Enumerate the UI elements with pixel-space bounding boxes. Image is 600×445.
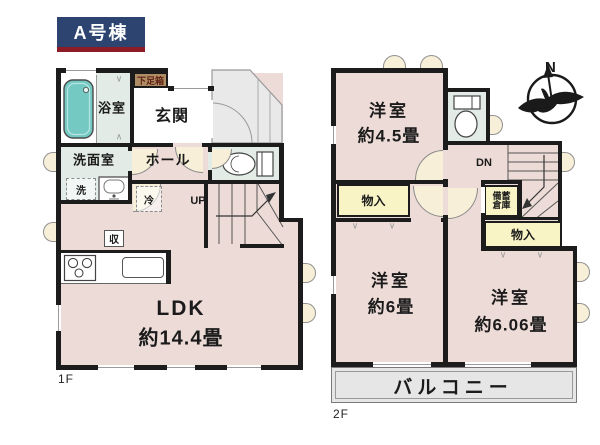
washer-label: 洗 — [76, 182, 86, 197]
shoebox: 下足箱 — [133, 72, 168, 88]
fridge-label: 冷 — [144, 192, 154, 207]
f1-floor-step — [283, 222, 298, 365]
fold-mark: ∨ — [537, 250, 544, 261]
building-title: A号棟 — [74, 19, 129, 45]
f1-stairs — [206, 182, 285, 248]
casement-window — [43, 152, 56, 172]
wall — [481, 180, 522, 184]
door-opening — [443, 150, 448, 179]
closet-right-label: 物入 — [511, 226, 535, 243]
title-underline — [57, 47, 145, 52]
floor1-label: 1F — [58, 372, 74, 386]
kitchen-sink — [122, 257, 164, 278]
wall — [204, 184, 208, 248]
window — [174, 86, 208, 91]
room-label-606: 洋室 — [491, 284, 531, 309]
stairs-up-label: UP — [190, 195, 205, 207]
compass-north-label: N — [545, 59, 556, 76]
entrance-porch — [210, 66, 286, 146]
closet-right: 物入 — [484, 221, 562, 248]
stock-storage: 備蓄 倉庫 — [484, 185, 519, 217]
stove — [63, 254, 97, 282]
floorplan-page: { "title": "A号棟", "colors": { "wall": "#… — [0, 0, 600, 445]
washbasin — [98, 176, 130, 202]
window — [98, 365, 134, 370]
window — [331, 126, 336, 144]
casement-window — [577, 303, 590, 323]
title-block: A号棟 — [57, 17, 145, 52]
counter-top-edge — [60, 250, 168, 253]
washer-space: 洗 — [66, 178, 96, 200]
window — [167, 365, 195, 370]
counter-end-stub — [166, 250, 171, 284]
window — [331, 276, 336, 294]
floor2-label: 2F — [333, 407, 349, 421]
wall — [60, 200, 132, 204]
casement-window — [490, 115, 503, 135]
casement-window — [577, 262, 590, 282]
window — [56, 305, 61, 331]
wall — [331, 68, 448, 73]
room-label-washroom: 洗面室 — [73, 150, 115, 169]
door-opening — [411, 218, 441, 222]
fold-mark: ∨ — [116, 74, 123, 85]
wall — [60, 143, 283, 147]
fold-mark: ∨ — [352, 221, 359, 232]
storage-label: 収 — [109, 231, 119, 246]
room-label-606-size: 約6.06畳 — [474, 311, 547, 336]
room-label-45-size: 約4.5畳 — [358, 122, 421, 147]
wall — [448, 141, 562, 145]
closet-left: 物入 — [337, 184, 410, 217]
room-label-45: 洋室 — [369, 97, 409, 122]
door-opening — [481, 187, 485, 213]
casement-window — [303, 263, 316, 283]
title-banner: A号棟 — [57, 17, 145, 47]
room-label-hall: ホール — [146, 150, 191, 170]
window — [227, 365, 261, 370]
fold-mark: ∨ — [500, 250, 507, 261]
casement-window — [420, 55, 443, 68]
fold-mark: ∧ — [116, 132, 123, 143]
wall — [448, 88, 490, 92]
bathtub — [62, 78, 96, 140]
wall — [298, 218, 303, 370]
stairs-dn-label: DN — [476, 157, 492, 169]
door-opening — [210, 100, 213, 138]
casement-window — [562, 152, 575, 172]
casement-window — [43, 222, 56, 242]
wall — [240, 244, 284, 248]
room-label-ldk-size: 約14.4畳 — [139, 322, 224, 351]
room-label-bathroom: 浴室 — [98, 98, 126, 117]
casement-window — [303, 303, 316, 323]
wall — [481, 217, 562, 220]
room-label-ldk: LDK — [156, 297, 205, 321]
window — [66, 68, 96, 73]
closet-left-label: 物入 — [361, 192, 385, 209]
room-label-6: 洋室 — [371, 267, 411, 292]
stock-storage-line2: 倉庫 — [492, 201, 510, 210]
balcony-label: バルコニー — [393, 373, 513, 400]
casement-window — [383, 55, 406, 68]
storage-space: 収 — [104, 230, 124, 247]
door-opening — [208, 244, 238, 248]
shoebox-label: 下足箱 — [137, 74, 164, 87]
room-label-6-size: 約6畳 — [368, 293, 414, 318]
room-label-entrance: 玄関 — [155, 102, 189, 126]
compass-north-icon: N — [512, 56, 590, 134]
tub-partition — [96, 75, 97, 143]
f2-toilet-fixture — [450, 94, 484, 140]
fold-mark: ∨ — [389, 221, 396, 232]
fridge-space: 冷 — [136, 186, 162, 212]
